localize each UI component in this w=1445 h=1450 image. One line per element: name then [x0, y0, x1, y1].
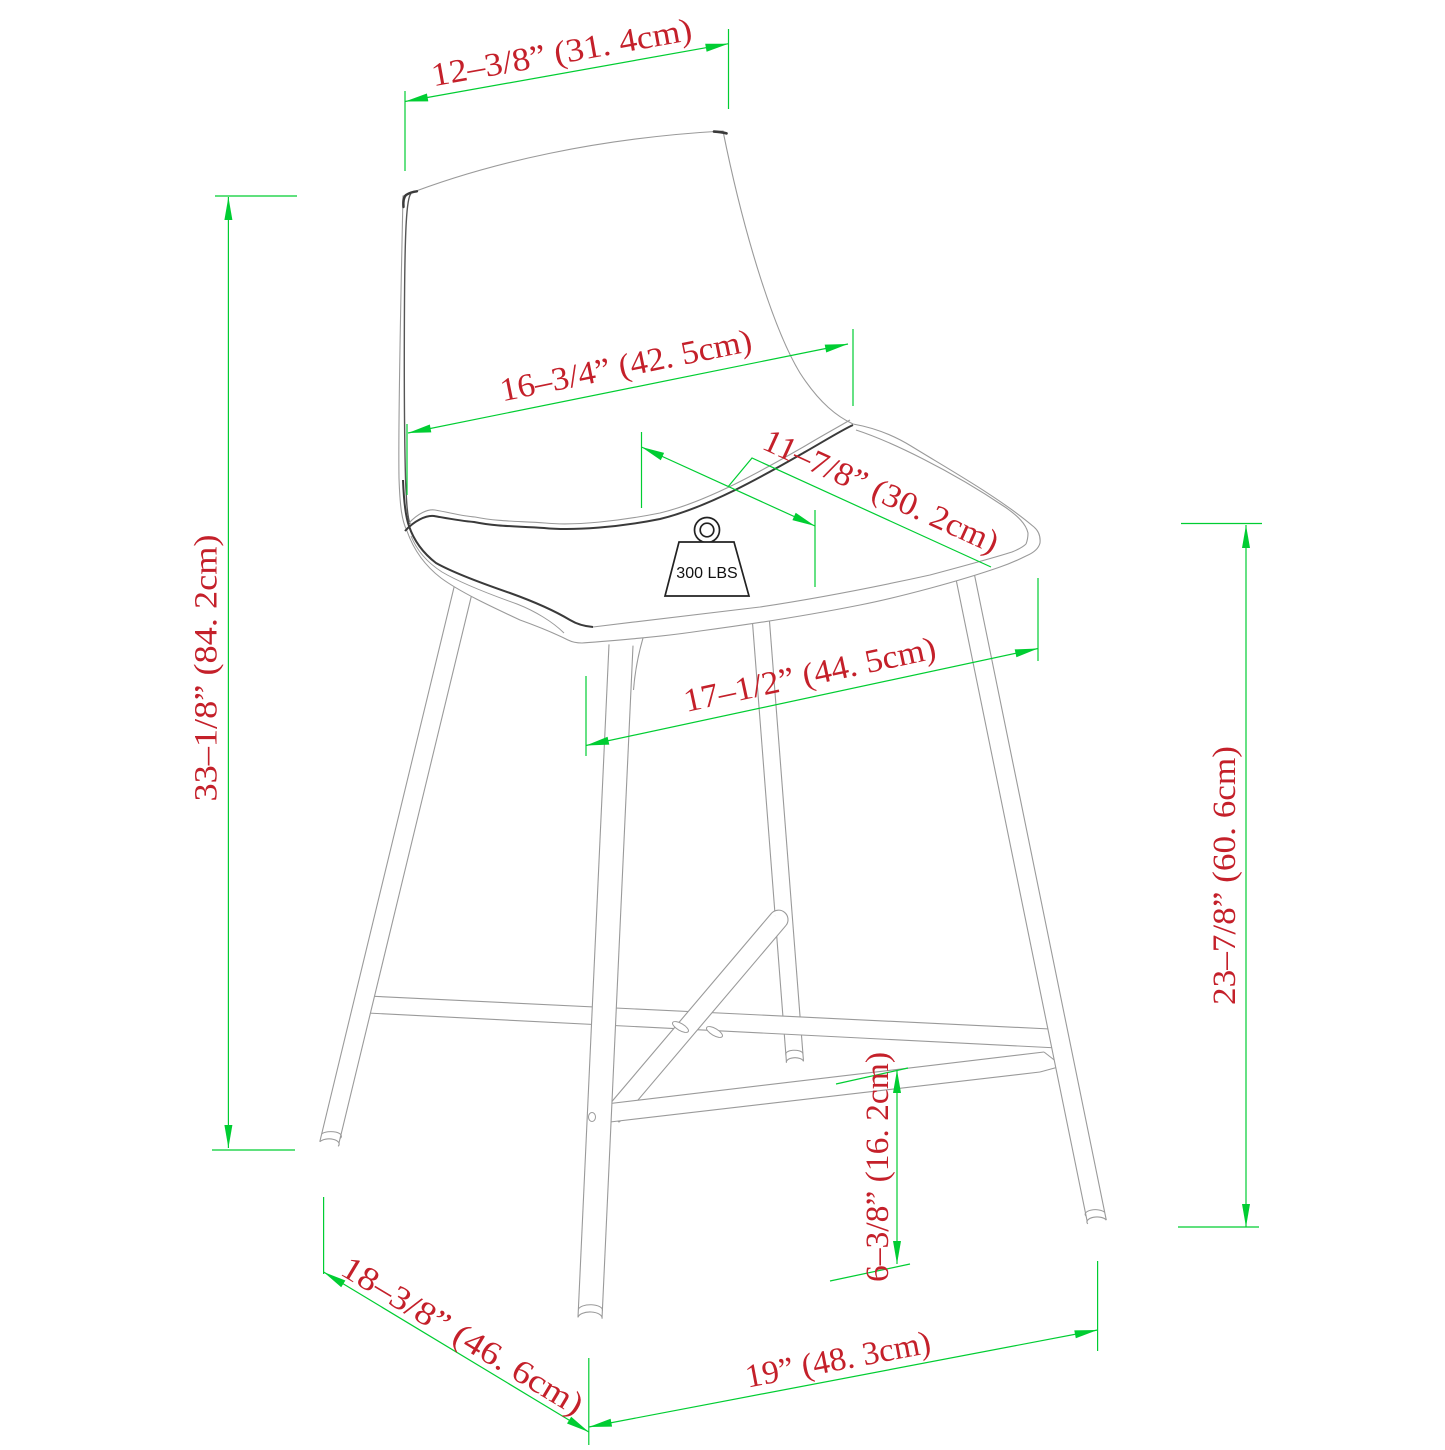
svg-text:300 LBS: 300 LBS — [676, 565, 737, 582]
svg-text:33–1/8” (84. 2cm): 33–1/8” (84. 2cm) — [189, 535, 225, 802]
svg-text:23–7/8” (60. 6cm): 23–7/8” (60. 6cm) — [1207, 746, 1243, 1005]
svg-text:6–3/8” (16. 2cm): 6–3/8” (16. 2cm) — [860, 1052, 896, 1282]
